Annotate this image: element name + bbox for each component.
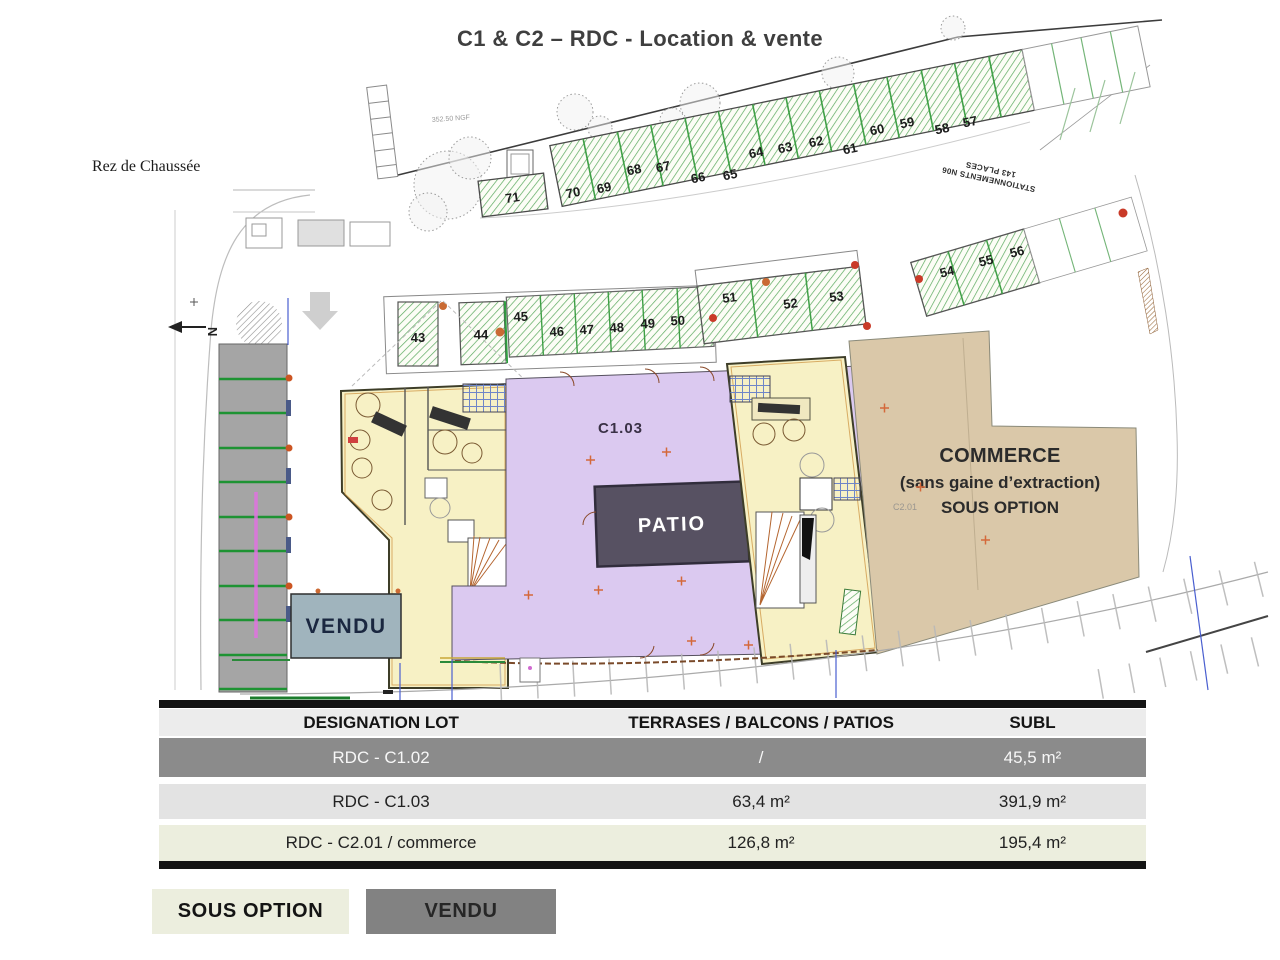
stall-number: 59 [898, 114, 915, 132]
zone-vendu-label: VENDU [305, 615, 386, 638]
stall-number: 71 [504, 189, 520, 206]
cell-terrace: / [603, 748, 919, 768]
patio: PATIO [595, 481, 750, 566]
table-row-c103: RDC - C1.03 63,4 m² 391,9 m² [159, 784, 1146, 819]
column-header-subl: SUBL [919, 713, 1146, 733]
zone-c201-label: C2.01 [893, 502, 917, 512]
legend-vendu: VENDU [366, 889, 556, 934]
lots-table: DESIGNATION LOT TERRASES / BALCONS / PAT… [159, 700, 1146, 869]
table-top-rule [159, 700, 1146, 708]
stall-number: 47 [579, 322, 594, 338]
cell-lot: RDC - C1.03 [159, 792, 603, 812]
stall-number: 46 [549, 324, 564, 340]
cell-subl: 391,9 m² [919, 792, 1146, 812]
stall-number: 68 [625, 161, 642, 179]
stall-number: 52 [782, 295, 798, 312]
zone-c103-label: C1.03 [598, 420, 643, 437]
stall-number: 67 [654, 158, 671, 176]
stall-number: 70 [564, 184, 581, 202]
cell-terrace: 126,8 m² [603, 833, 919, 853]
stall-number: 49 [640, 316, 655, 332]
stall-number: 65 [721, 166, 738, 184]
parking-note: STATIONNEMENTS N06 143 PLACES [941, 155, 1038, 193]
entrance-arrow-icon [302, 292, 338, 330]
stall-number: 57 [961, 113, 978, 131]
site-plan: STATIONNEMENTS N06 143 PLACES 352.50 NGF [0, 0, 1280, 705]
stall-number: 53 [828, 288, 844, 305]
stall-number: 45 [513, 309, 528, 325]
table-row-c201: RDC - C2.01 / commerce 126,8 m² 195,4 m² [159, 825, 1146, 861]
parking-band-54-56 [911, 197, 1147, 316]
stall-number: 51 [721, 289, 737, 306]
elevation-label: 352.50 NGF [432, 114, 471, 124]
commerce-label-line3: SOUS OPTION [941, 498, 1059, 517]
street-stairs [367, 85, 398, 179]
commerce-label-line2: (sans gaine d’extraction) [900, 473, 1100, 492]
table-header-row: DESIGNATION LOT TERRASES / BALCONS / PAT… [159, 709, 1146, 736]
stall-number: 44 [474, 327, 489, 342]
stall-number: 50 [670, 313, 685, 329]
commerce-label-line1: COMMERCE [939, 445, 1060, 467]
stall-number: 48 [609, 320, 624, 336]
table-row-c102: RDC - C1.02 / 45,5 m² [159, 738, 1146, 777]
stall-number: 69 [595, 179, 612, 197]
stall-number: 58 [933, 120, 950, 138]
zone-vendu: VENDU [291, 589, 401, 659]
stall-number: 62 [807, 133, 824, 151]
column-header-terraces: TERRASES / BALCONS / PATIOS [603, 713, 919, 733]
north-label: N [205, 327, 220, 336]
cell-lot: RDC - C1.02 [159, 748, 603, 768]
zone-commerce: C2.01 COMMERCE (sans gaine d’extraction)… [849, 331, 1139, 654]
table-bottom-rule [159, 861, 1146, 869]
stall-number: 43 [411, 330, 425, 345]
cell-terrace: 63,4 m² [603, 792, 919, 812]
stall-number: 61 [841, 140, 858, 158]
cell-lot: RDC - C2.01 / commerce [159, 833, 603, 853]
cell-subl: 195,4 m² [919, 833, 1146, 853]
legend-sous-option: SOUS OPTION [152, 889, 349, 934]
column-header-designation: DESIGNATION LOT [159, 713, 603, 733]
tree-hatched [236, 301, 282, 347]
stall-number: 60 [868, 121, 885, 139]
hatched-wedge [1138, 268, 1158, 334]
stall-number: 63 [776, 139, 793, 157]
stall-number: 66 [689, 169, 706, 187]
cell-subl: 45,5 m² [919, 748, 1146, 768]
patio-label: PATIO [638, 513, 707, 537]
